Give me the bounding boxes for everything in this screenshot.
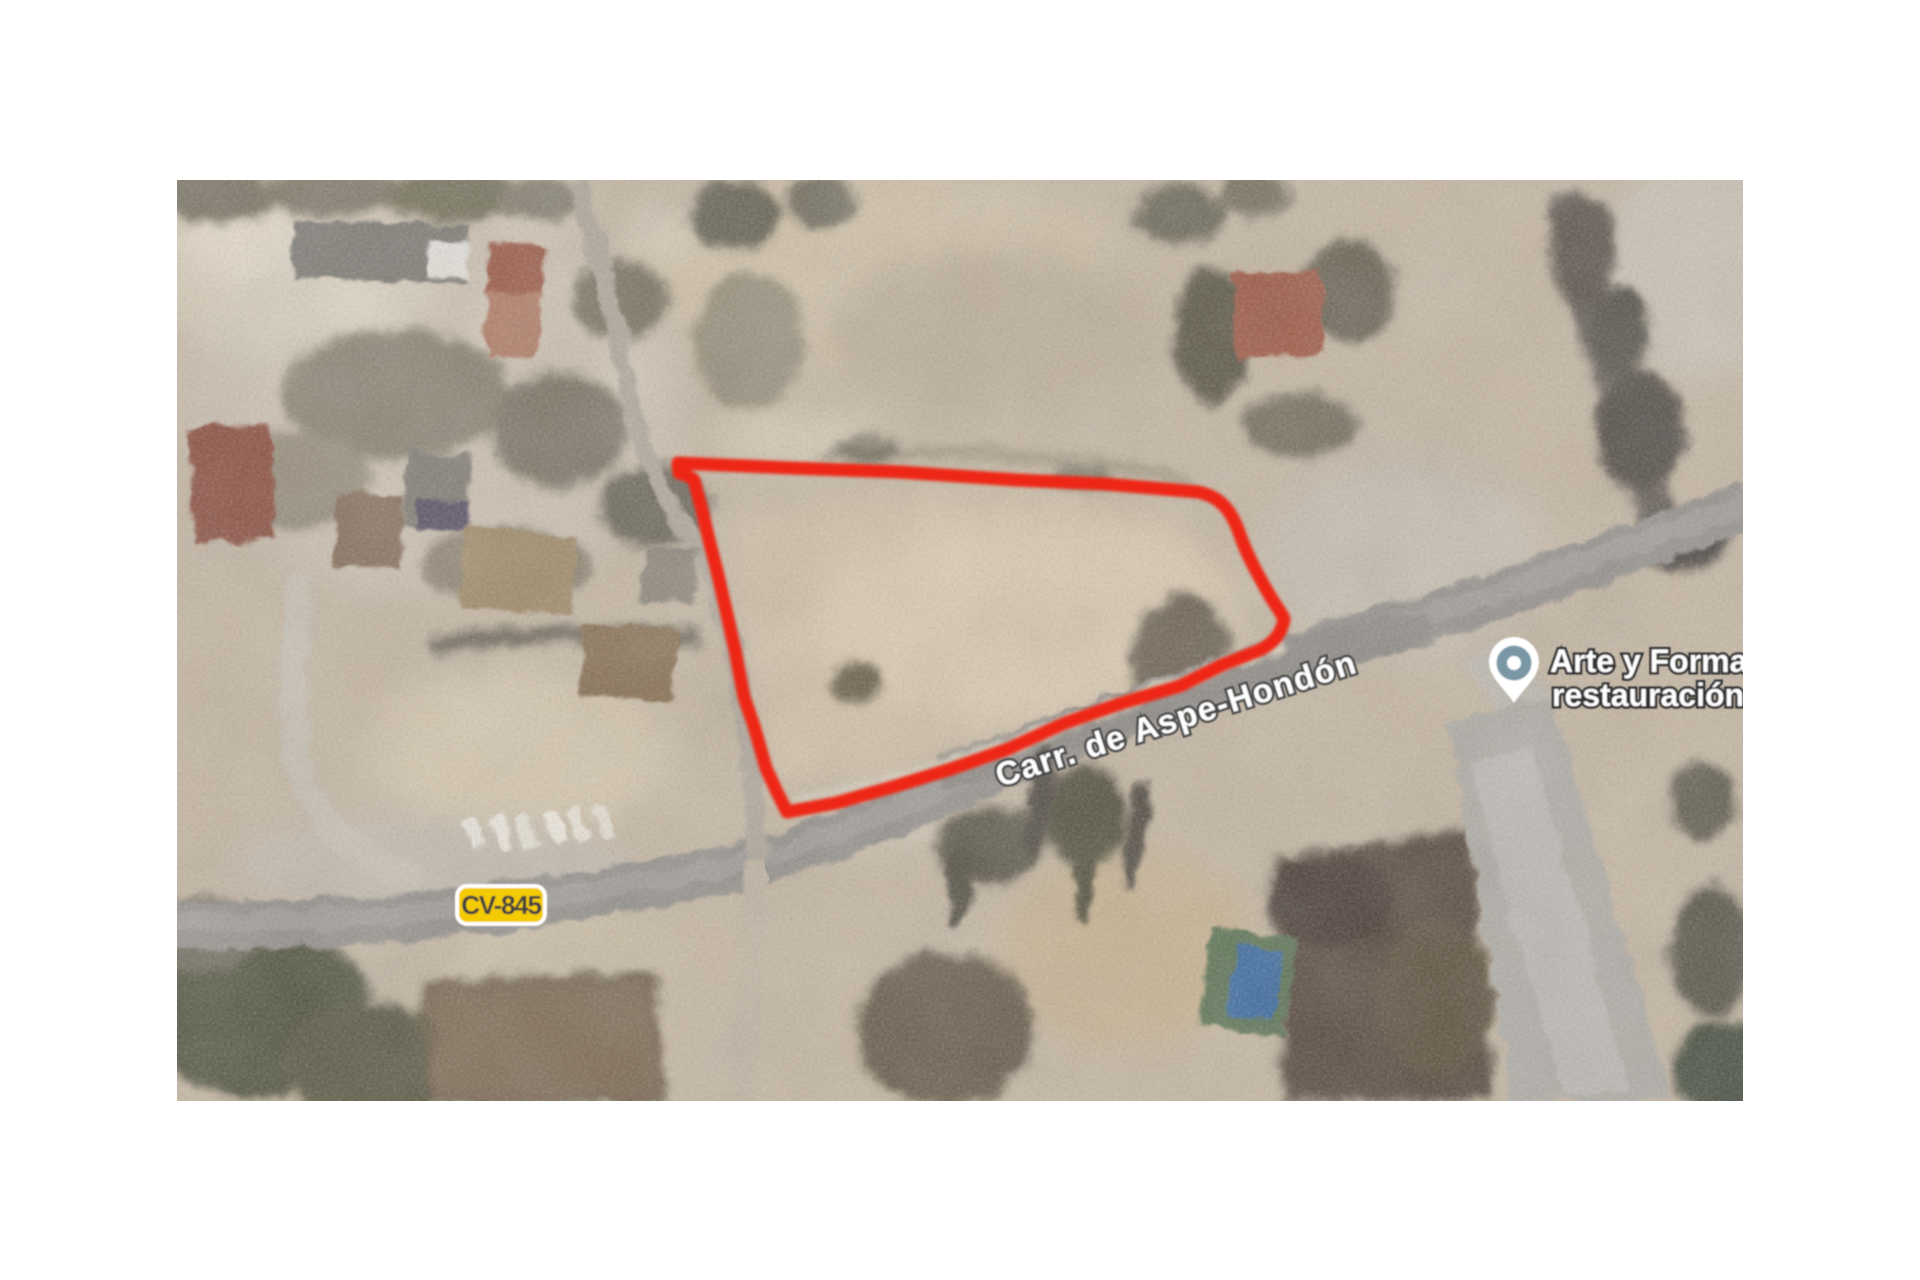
svg-text:CV-845: CV-845 <box>461 890 541 920</box>
